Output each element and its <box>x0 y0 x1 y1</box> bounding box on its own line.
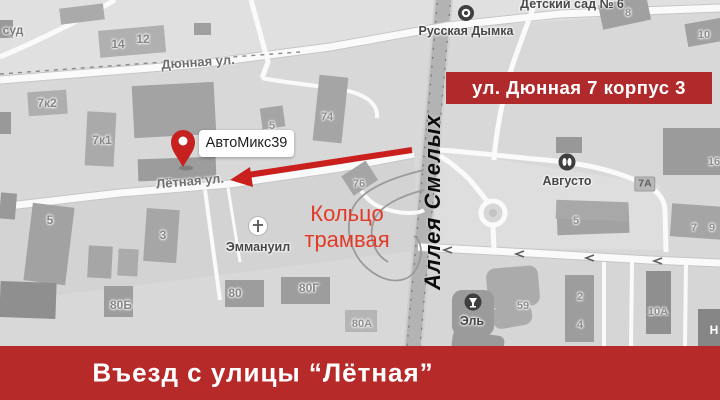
building-label: 5 <box>47 213 54 227</box>
bottom-banner: Въезд с улицы “Лётная” Avito <box>0 346 720 400</box>
marker-label-avtomiks39: АвтоМикс39 <box>199 130 294 157</box>
poi-label-emmanuil: Эммануил <box>226 240 290 254</box>
roundabout-center <box>489 209 497 217</box>
label-sud: суд <box>3 23 24 37</box>
building-label: 10А <box>648 306 668 318</box>
map-screenshot: суд Дюнная ул. Лётная ул. Аллея Смелых Р… <box>0 0 720 400</box>
tram-ring-annotation: Кольцо трамвая <box>304 201 389 253</box>
el-goblet-poi-icon <box>465 294 482 311</box>
russkaya-dymka-poi-icon <box>458 5 474 21</box>
building-label: 8 <box>625 7 631 19</box>
building-label: 5 <box>573 215 579 227</box>
building-label: 7 <box>691 222 697 234</box>
building-label: 4 <box>577 319 583 331</box>
building-label: Н <box>710 323 719 337</box>
building-label: 7к2 <box>37 96 56 110</box>
building-label: 2 <box>577 291 583 303</box>
building-label: 74 <box>321 111 333 123</box>
poi-label-russkaya-dymka: Русская Дымка <box>419 24 514 38</box>
poi-label-avgusto: Августо <box>542 174 591 188</box>
tram-ring-line2: трамвая <box>304 227 389 253</box>
building-label: 80 <box>228 286 241 300</box>
building-label: 9 <box>709 222 715 234</box>
building-label: 59 <box>517 300 529 312</box>
map-block <box>422 150 666 250</box>
church-cross-icon <box>249 217 268 236</box>
poi-label-detsky-sad: Детский сад № 6 <box>520 0 624 11</box>
map-canvas <box>0 0 720 400</box>
entrance-note: Въезд с улицы “Лётная” <box>92 358 433 389</box>
street-label-alleya-smelykh: Аллея Смелых <box>420 114 446 290</box>
building-label: 80Г <box>299 281 319 295</box>
building-label: 76 <box>353 178 365 190</box>
road-badge-7a: 7А <box>634 177 655 192</box>
address-banner: ул. Дюнная 7 корпус 3 <box>446 72 712 104</box>
avgusto-poi-icon <box>559 154 576 171</box>
tram-ring-line1: Кольцо <box>304 201 389 227</box>
building-label: 3 <box>160 228 167 242</box>
building-label: 80Б <box>110 298 132 312</box>
poi-label-el: Эль <box>460 314 484 328</box>
building-label: 16 <box>708 156 720 168</box>
building-label: 80А <box>352 318 372 330</box>
building-label: 14 <box>111 37 124 51</box>
building-label: 7к1 <box>92 133 111 147</box>
building-label: 10 <box>698 29 710 41</box>
building-label: 12 <box>136 32 149 46</box>
